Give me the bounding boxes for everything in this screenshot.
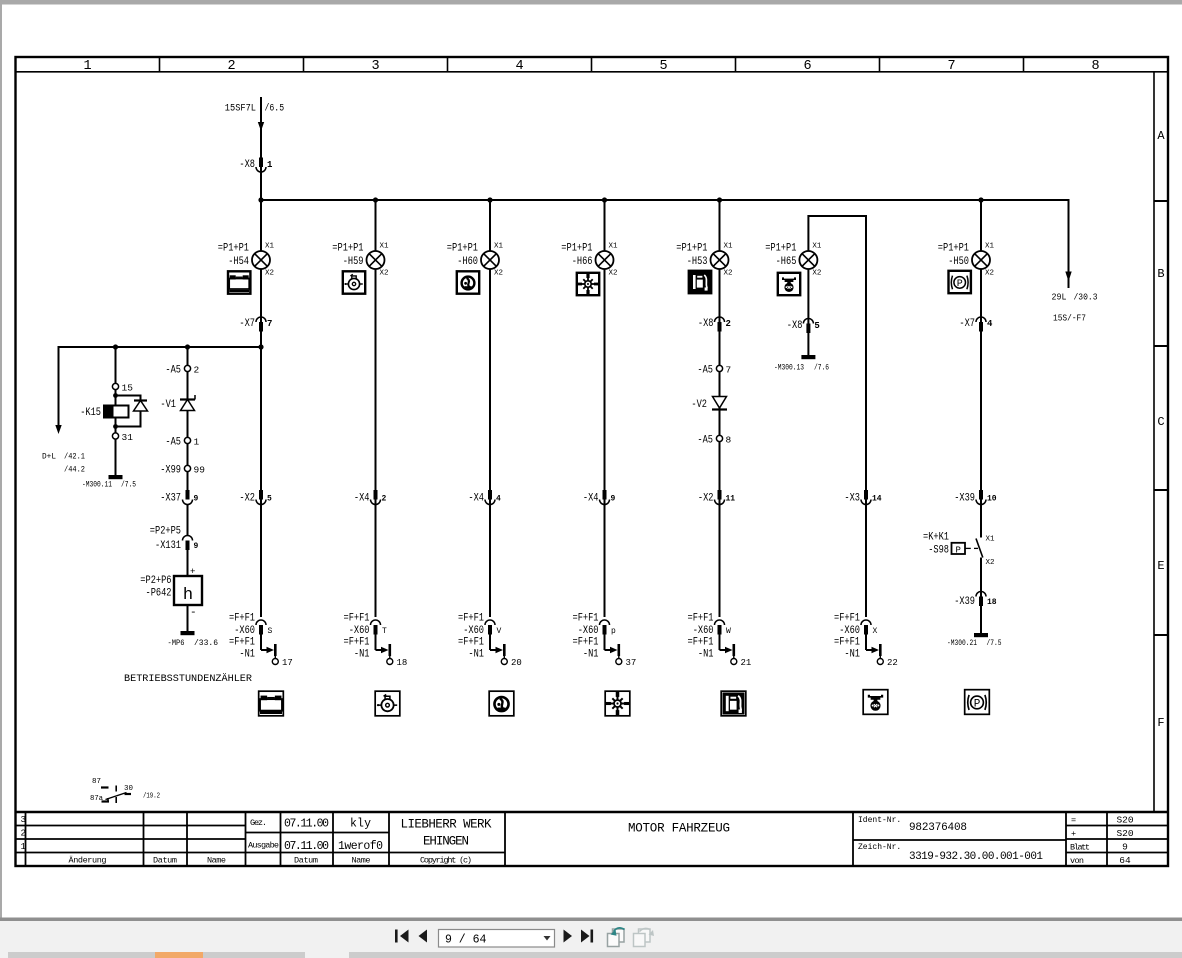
svg-text:X1: X1 <box>494 243 504 251</box>
svg-text:-H54: -H54 <box>228 256 249 268</box>
svg-text:-X60: -X60 <box>234 625 255 637</box>
svg-text:2: 2 <box>21 829 26 839</box>
svg-text:1: 1 <box>267 160 273 170</box>
svg-text:P: P <box>955 545 960 555</box>
svg-text:Gez.: Gez. <box>250 818 267 828</box>
svg-text:-A5: -A5 <box>165 437 181 449</box>
svg-text:-X2: -X2 <box>239 493 255 505</box>
svg-text:W: W <box>726 627 731 636</box>
svg-text:+: + <box>190 567 195 577</box>
svg-text:-X99: -X99 <box>160 465 181 477</box>
svg-text:-X3: -X3 <box>844 493 860 505</box>
svg-text:31: 31 <box>122 432 134 443</box>
svg-text:07.11.00: 07.11.00 <box>284 840 329 853</box>
svg-text:E: E <box>1157 559 1164 573</box>
svg-text:9: 9 <box>194 542 199 551</box>
svg-text:2: 2 <box>726 319 731 329</box>
svg-text:p: p <box>611 627 616 636</box>
svg-text:Name: Name <box>352 856 371 866</box>
svg-text:Ausgabe: Ausgabe <box>248 841 279 851</box>
svg-text:=F+F1: =F+F1 <box>344 613 370 625</box>
svg-text:Zeich-Nr.: Zeich-Nr. <box>858 843 901 852</box>
svg-text:-X39: -X39 <box>954 596 975 608</box>
svg-text:BETRIEBSSTUNDENZÄHLER: BETRIEBSSTUNDENZÄHLER <box>124 672 253 685</box>
svg-text:von: von <box>1070 856 1084 866</box>
svg-text:/30.3: /30.3 <box>1074 292 1098 303</box>
svg-text:-MP6: -MP6 <box>168 639 185 648</box>
svg-text:-X60: -X60 <box>693 625 714 637</box>
svg-text:-X39: -X39 <box>954 493 975 505</box>
svg-text:-X60: -X60 <box>349 625 370 637</box>
svg-text:3: 3 <box>371 59 379 74</box>
svg-text:X1: X1 <box>609 243 619 251</box>
svg-text:8: 8 <box>1091 59 1099 74</box>
svg-text:-X60: -X60 <box>839 625 860 637</box>
svg-text:5: 5 <box>267 495 272 504</box>
svg-text:=P1+P1: =P1+P1 <box>447 243 479 255</box>
svg-text:17: 17 <box>282 658 293 668</box>
svg-text:10: 10 <box>987 495 997 504</box>
svg-text:99: 99 <box>194 465 206 476</box>
svg-text:18: 18 <box>987 598 997 607</box>
svg-text:-H66: -H66 <box>572 256 593 268</box>
svg-text:87: 87 <box>92 778 101 786</box>
svg-text:-N1: -N1 <box>583 649 599 661</box>
svg-text:=: = <box>1071 816 1076 826</box>
svg-text:=F+F1: =F+F1 <box>344 637 370 649</box>
svg-text:15SF7L: 15SF7L <box>225 103 256 115</box>
svg-text:-N1: -N1 <box>354 649 370 661</box>
svg-text:-M300.21: -M300.21 <box>947 639 977 648</box>
svg-text:X2: X2 <box>724 270 733 278</box>
svg-text:A: A <box>1157 129 1165 143</box>
svg-text:29L: 29L <box>1052 292 1067 303</box>
svg-text:-N1: -N1 <box>844 649 860 661</box>
svg-text:-K15: -K15 <box>80 407 101 419</box>
svg-text:/7.5: /7.5 <box>987 639 1002 648</box>
svg-text:=F+F1: =F+F1 <box>458 637 484 649</box>
svg-text:14: 14 <box>872 495 882 504</box>
svg-text:X1: X1 <box>380 243 390 251</box>
svg-text:X2: X2 <box>986 559 995 567</box>
svg-text:Ident-Nr.: Ident-Nr. <box>858 816 901 825</box>
svg-text:-X4: -X4 <box>583 493 599 505</box>
svg-text:Datum: Datum <box>153 856 177 866</box>
svg-text:1: 1 <box>83 59 91 74</box>
svg-text:9: 9 <box>611 495 616 504</box>
svg-text:Blatt: Blatt <box>1070 843 1090 853</box>
svg-text:/33.6: /33.6 <box>194 639 218 648</box>
svg-text:Datum: Datum <box>294 856 318 866</box>
svg-text:-A5: -A5 <box>165 365 181 377</box>
svg-text:+: + <box>1071 829 1076 839</box>
svg-text:-H65: -H65 <box>776 256 797 268</box>
svg-text:/7.6: /7.6 <box>814 364 829 373</box>
svg-text:-X131: -X131 <box>155 540 181 552</box>
svg-text:S: S <box>268 627 273 636</box>
svg-text:/42.1: /42.1 <box>64 452 85 462</box>
svg-text:h: h <box>183 586 193 605</box>
svg-text:X2: X2 <box>812 270 821 278</box>
svg-text:/44.2: /44.2 <box>64 465 85 475</box>
svg-text:21: 21 <box>741 658 752 668</box>
svg-text:Copyright (c): Copyright (c) <box>420 856 472 866</box>
svg-text:=F+F1: =F+F1 <box>229 613 255 625</box>
svg-text:3: 3 <box>21 815 26 825</box>
svg-text:-H53: -H53 <box>687 256 708 268</box>
svg-text:22: 22 <box>887 658 898 668</box>
svg-text:7: 7 <box>726 365 732 376</box>
svg-text:MOTOR FAHRZEUG: MOTOR FAHRZEUG <box>628 822 730 836</box>
svg-text:-H60: -H60 <box>457 256 478 268</box>
svg-text:15S/-F7: 15S/-F7 <box>1053 313 1086 324</box>
svg-text:=P1+P1: =P1+P1 <box>676 243 708 255</box>
svg-text:Änderung: Änderung <box>69 856 107 866</box>
svg-text:X1: X1 <box>812 243 822 251</box>
svg-text:=F+F1: =F+F1 <box>573 637 599 649</box>
svg-text:-X60: -X60 <box>463 625 484 637</box>
svg-text:=F+F1: =F+F1 <box>688 637 714 649</box>
svg-text:-V1: -V1 <box>160 399 176 411</box>
svg-text:4: 4 <box>515 59 523 74</box>
svg-text:-A5: -A5 <box>697 365 713 377</box>
svg-text:B: B <box>1157 267 1164 281</box>
svg-text:8: 8 <box>726 435 732 446</box>
svg-text:982376408: 982376408 <box>909 822 967 834</box>
svg-text:Name: Name <box>207 856 226 866</box>
svg-text:-M300.11: -M300.11 <box>82 481 112 490</box>
svg-text:=P1+P1: =P1+P1 <box>218 243 250 255</box>
svg-text:=P1+P1: =P1+P1 <box>938 243 970 255</box>
svg-text:X: X <box>873 627 878 636</box>
svg-text:-X8: -X8 <box>787 320 803 332</box>
svg-text:6: 6 <box>803 59 811 74</box>
svg-text:-V2: -V2 <box>691 399 707 411</box>
svg-text:X2: X2 <box>985 270 994 278</box>
svg-text:-H50: -H50 <box>948 256 969 268</box>
svg-text:X2: X2 <box>494 270 503 278</box>
svg-text:X1: X1 <box>265 243 275 251</box>
svg-text:3319-932.30.00.001-001: 3319-932.30.00.001-001 <box>909 851 1043 863</box>
svg-text:V: V <box>497 627 502 636</box>
svg-text:=P2+P5: =P2+P5 <box>150 526 181 538</box>
svg-text:1werof0: 1werof0 <box>338 840 383 853</box>
svg-text:07.11.00: 07.11.00 <box>284 818 329 831</box>
svg-text:-X7: -X7 <box>239 318 255 330</box>
svg-text:2: 2 <box>194 365 200 376</box>
svg-text:-X4: -X4 <box>468 493 484 505</box>
svg-text:=F+F1: =F+F1 <box>688 613 714 625</box>
svg-text:C: C <box>1157 415 1164 429</box>
svg-text:=P1+P1: =P1+P1 <box>765 243 797 255</box>
svg-text:/6.5: /6.5 <box>265 103 285 115</box>
svg-text:9: 9 <box>194 495 199 504</box>
svg-text:7: 7 <box>947 59 955 74</box>
svg-text:15: 15 <box>122 383 134 394</box>
svg-text:9 / 64: 9 / 64 <box>445 934 487 947</box>
svg-text:37: 37 <box>626 658 637 668</box>
svg-text:-X2: -X2 <box>698 493 714 505</box>
svg-text:20: 20 <box>511 658 522 668</box>
svg-text:2: 2 <box>227 59 235 74</box>
svg-text:-H59: -H59 <box>343 256 364 268</box>
svg-text:X1: X1 <box>986 536 996 544</box>
svg-text:T: T <box>382 627 387 636</box>
svg-text:18: 18 <box>397 658 408 668</box>
svg-text:9: 9 <box>1122 842 1128 853</box>
svg-text:30: 30 <box>124 785 133 793</box>
svg-text:/7.5: /7.5 <box>121 481 136 490</box>
svg-text:-X8: -X8 <box>239 159 255 171</box>
svg-text:=F+F1: =F+F1 <box>834 613 860 625</box>
svg-text:kly: kly <box>350 818 371 831</box>
svg-text:=F+F1: =F+F1 <box>834 637 860 649</box>
svg-text:S20: S20 <box>1116 815 1133 826</box>
svg-text:-N1: -N1 <box>239 649 255 661</box>
svg-text:X2: X2 <box>609 270 618 278</box>
svg-text:EHINGEN: EHINGEN <box>423 835 469 849</box>
svg-text:D+L: D+L <box>42 452 56 462</box>
svg-text:4: 4 <box>987 319 993 329</box>
svg-text:-P642: -P642 <box>146 588 172 600</box>
svg-text:=K+K1: =K+K1 <box>923 532 949 544</box>
svg-text:LIEBHERR WERK: LIEBHERR WERK <box>401 818 492 832</box>
svg-text:-X8: -X8 <box>698 318 714 330</box>
svg-text:=P1+P1: =P1+P1 <box>561 243 593 255</box>
svg-text:5: 5 <box>659 59 667 74</box>
svg-text:F: F <box>1157 716 1164 730</box>
svg-text:X1: X1 <box>985 243 995 251</box>
svg-text:X2: X2 <box>380 270 389 278</box>
svg-text:2: 2 <box>382 495 387 504</box>
svg-text:=P1+P1: =P1+P1 <box>332 243 364 255</box>
svg-text:-X7: -X7 <box>959 318 975 330</box>
svg-text:/19.2: /19.2 <box>143 793 160 801</box>
svg-text:7: 7 <box>267 319 272 329</box>
svg-text:64: 64 <box>1119 855 1131 866</box>
svg-text:4: 4 <box>496 495 501 504</box>
svg-text:1: 1 <box>194 437 200 448</box>
svg-text:-: - <box>190 607 197 619</box>
svg-text:=F+F1: =F+F1 <box>229 637 255 649</box>
svg-text:87a: 87a <box>90 795 103 803</box>
svg-text:=F+F1: =F+F1 <box>573 613 599 625</box>
svg-text:-X4: -X4 <box>354 493 370 505</box>
svg-text:11: 11 <box>726 495 736 504</box>
svg-text:-N1: -N1 <box>468 649 484 661</box>
svg-text:-M300.13: -M300.13 <box>774 364 804 373</box>
svg-text:-A5: -A5 <box>697 435 713 447</box>
svg-text:1: 1 <box>21 842 26 852</box>
svg-text:5: 5 <box>814 321 819 331</box>
svg-text:=F+F1: =F+F1 <box>458 613 484 625</box>
svg-text:X1: X1 <box>724 243 734 251</box>
svg-text:X2: X2 <box>265 270 274 278</box>
svg-text:-X60: -X60 <box>578 625 599 637</box>
svg-text:-N1: -N1 <box>698 649 714 661</box>
svg-text:-X37: -X37 <box>160 493 181 505</box>
svg-text:S20: S20 <box>1116 828 1133 839</box>
svg-text:-S98: -S98 <box>928 545 949 557</box>
svg-text:=P2+P6: =P2+P6 <box>140 575 171 587</box>
